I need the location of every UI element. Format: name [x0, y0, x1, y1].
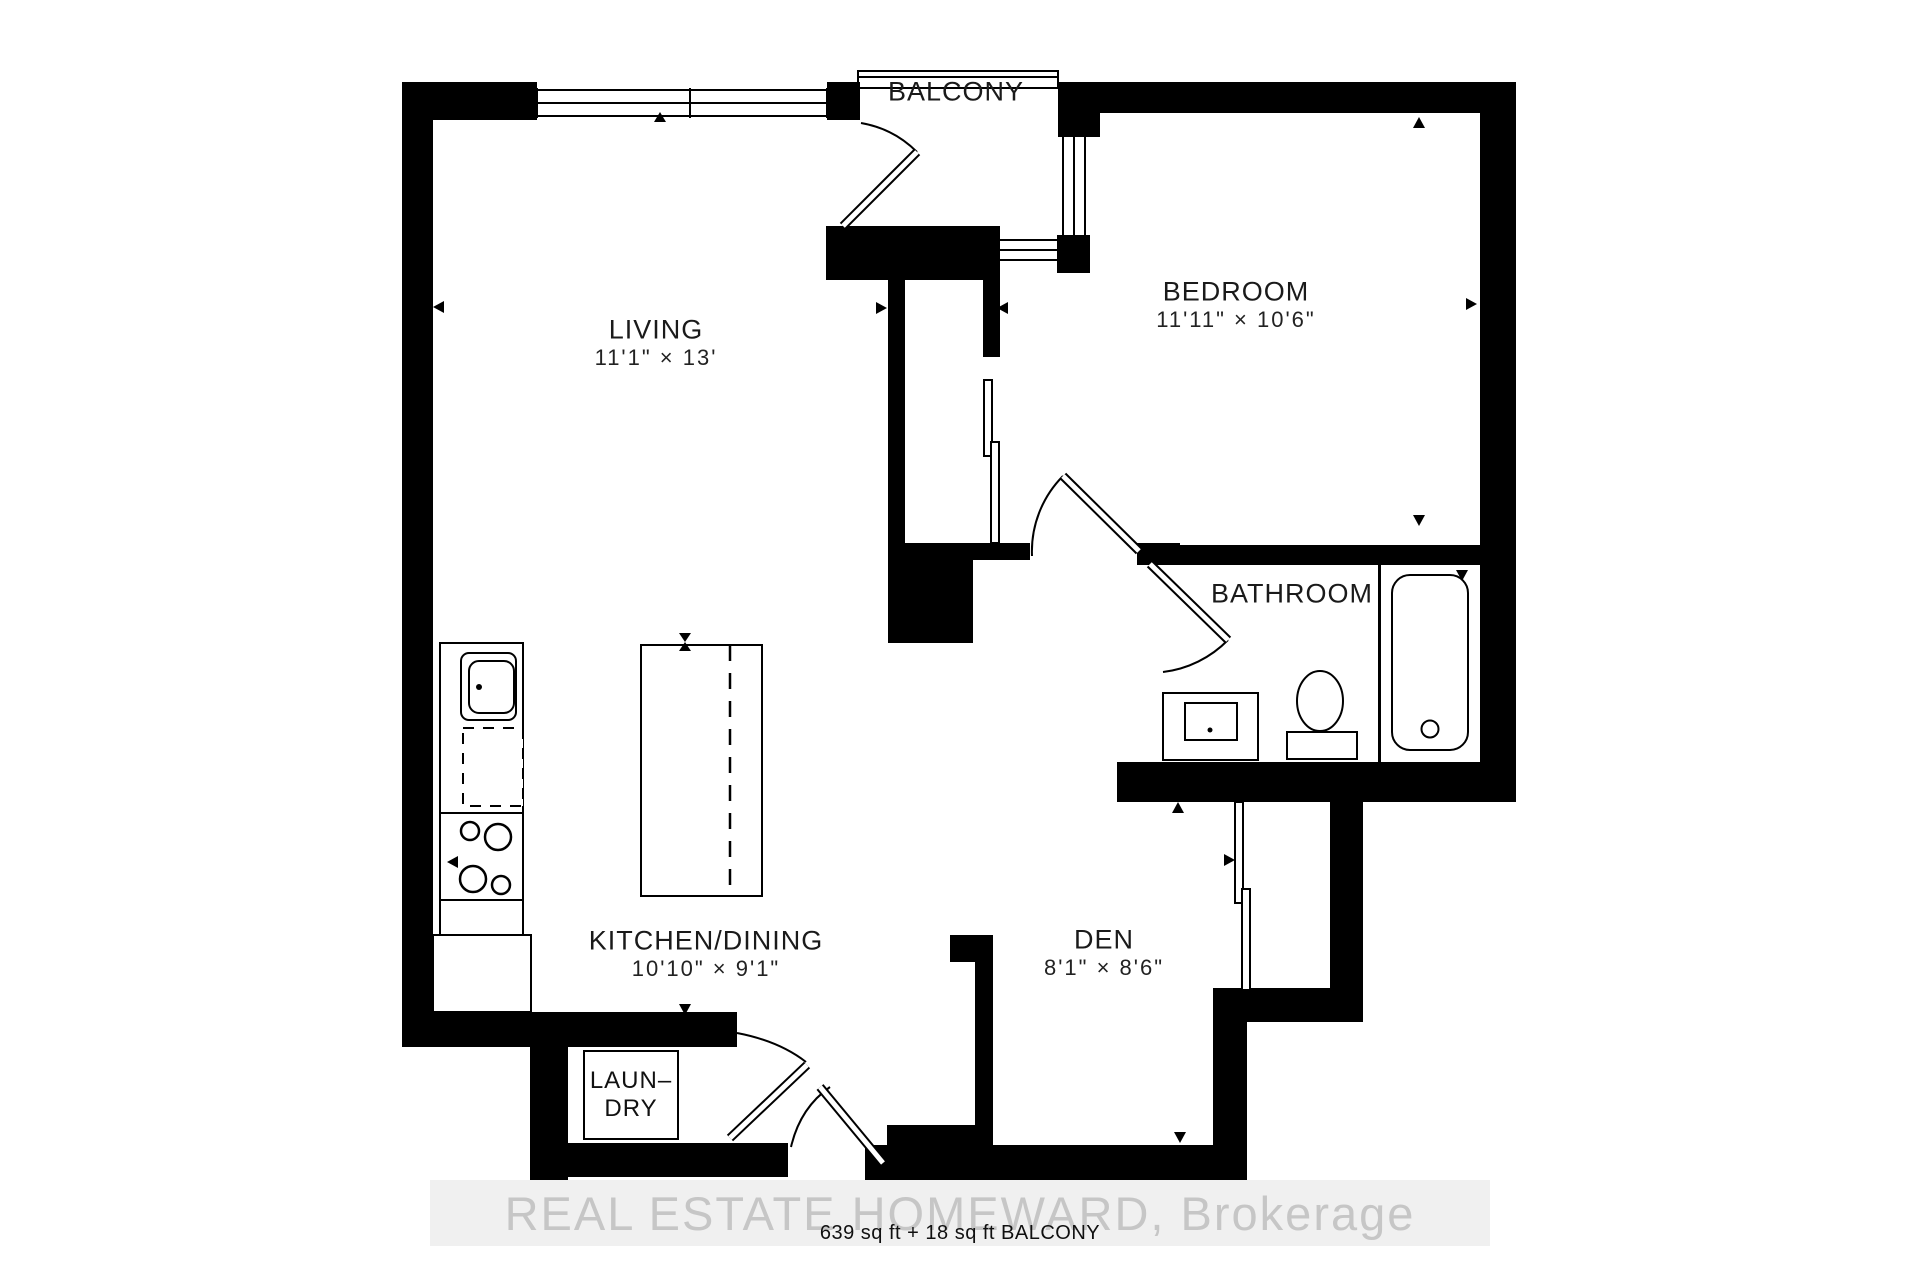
floor-plan: BALCONY LIVING 11'1" × 13' BEDROOM 11'11…	[0, 0, 1920, 1280]
living-label: LIVING	[609, 315, 704, 346]
living-window	[537, 88, 827, 118]
wall-bedroom-top	[1090, 82, 1516, 113]
wall-corner-block	[1057, 235, 1090, 273]
tick-island-top	[679, 633, 691, 642]
wall-tub-divider	[1378, 565, 1381, 762]
walls	[402, 82, 1516, 1180]
den-label: DEN	[1074, 925, 1134, 956]
entry-door	[791, 1087, 883, 1163]
tick-den-top	[1172, 802, 1184, 813]
wall-bathroom-bottom	[1117, 762, 1516, 802]
bathtub	[1392, 575, 1468, 750]
laundry-door	[730, 1033, 807, 1138]
tick-den-bottom	[1174, 1132, 1186, 1143]
dishwasher	[463, 728, 523, 806]
bathroom-label: BATHROOM	[1211, 579, 1373, 610]
wall-den-left-foot	[950, 935, 993, 962]
wall-bottom-right	[865, 1145, 1247, 1180]
toilet	[1287, 671, 1357, 759]
fridge	[433, 935, 531, 1012]
laundry-label-line1: LAUN–	[590, 1067, 672, 1095]
wall-bedroom-bathroom-divider	[1180, 545, 1516, 565]
bedroom-front-window	[1000, 240, 1057, 260]
wall-entry-step	[887, 1125, 975, 1147]
den-sliding-doors	[1235, 802, 1250, 990]
tick-bedroom-top	[1413, 117, 1425, 128]
bedroom-dim: 11'11" × 10'6"	[1156, 307, 1315, 333]
floor-plan-drawing	[0, 0, 1920, 1280]
wall-right	[1480, 82, 1516, 802]
wall-under-balcony	[826, 226, 1000, 280]
laundry-label-line2: DRY	[604, 1095, 657, 1123]
tick-den-right	[1224, 854, 1235, 866]
kitchen-island	[641, 645, 762, 896]
living-dim: 11'1" × 13'	[595, 345, 718, 371]
balcony-door	[843, 123, 917, 226]
bedroom-side-window	[1063, 137, 1085, 236]
bathroom-vanity	[1163, 693, 1258, 760]
wall-left	[402, 82, 433, 1047]
kitchen-sink	[461, 653, 516, 720]
den-dim: 8'1" × 8'6"	[1044, 955, 1164, 981]
laundry-closet: LAUN– DRY	[583, 1050, 679, 1140]
kitchen-label: KITCHEN/DINING	[589, 926, 824, 957]
wall-kitchen-bottom	[405, 1012, 737, 1047]
bedroom-door	[1032, 476, 1139, 556]
wall-balcony-left-block	[827, 82, 860, 120]
balcony-label: BALCONY	[888, 77, 1024, 108]
tick-bedroom-right	[1466, 298, 1477, 310]
closet-sliding-doors	[984, 380, 999, 543]
wall-door-stub	[1137, 543, 1180, 565]
wall-closet-left	[888, 280, 905, 543]
bedroom-label: BEDROOM	[1163, 277, 1310, 308]
tick-living-right	[876, 302, 887, 314]
wall-closet-right-stub	[983, 280, 1000, 357]
wall-den-step-vertical	[1213, 988, 1247, 1166]
wall-laundry-left	[530, 1047, 568, 1180]
area-note: 639 sq ft + 18 sq ft BALCONY	[660, 1222, 1260, 1245]
stove	[440, 813, 523, 900]
wall-bottom-left	[536, 1143, 788, 1177]
wall-closet-bottom	[903, 543, 1030, 560]
kitchen-dim: 10'10" × 9'1"	[632, 956, 781, 982]
tick-bedroom-bottom	[1413, 515, 1425, 526]
wall-den-left	[975, 935, 993, 1146]
tick-living-left	[433, 301, 444, 313]
